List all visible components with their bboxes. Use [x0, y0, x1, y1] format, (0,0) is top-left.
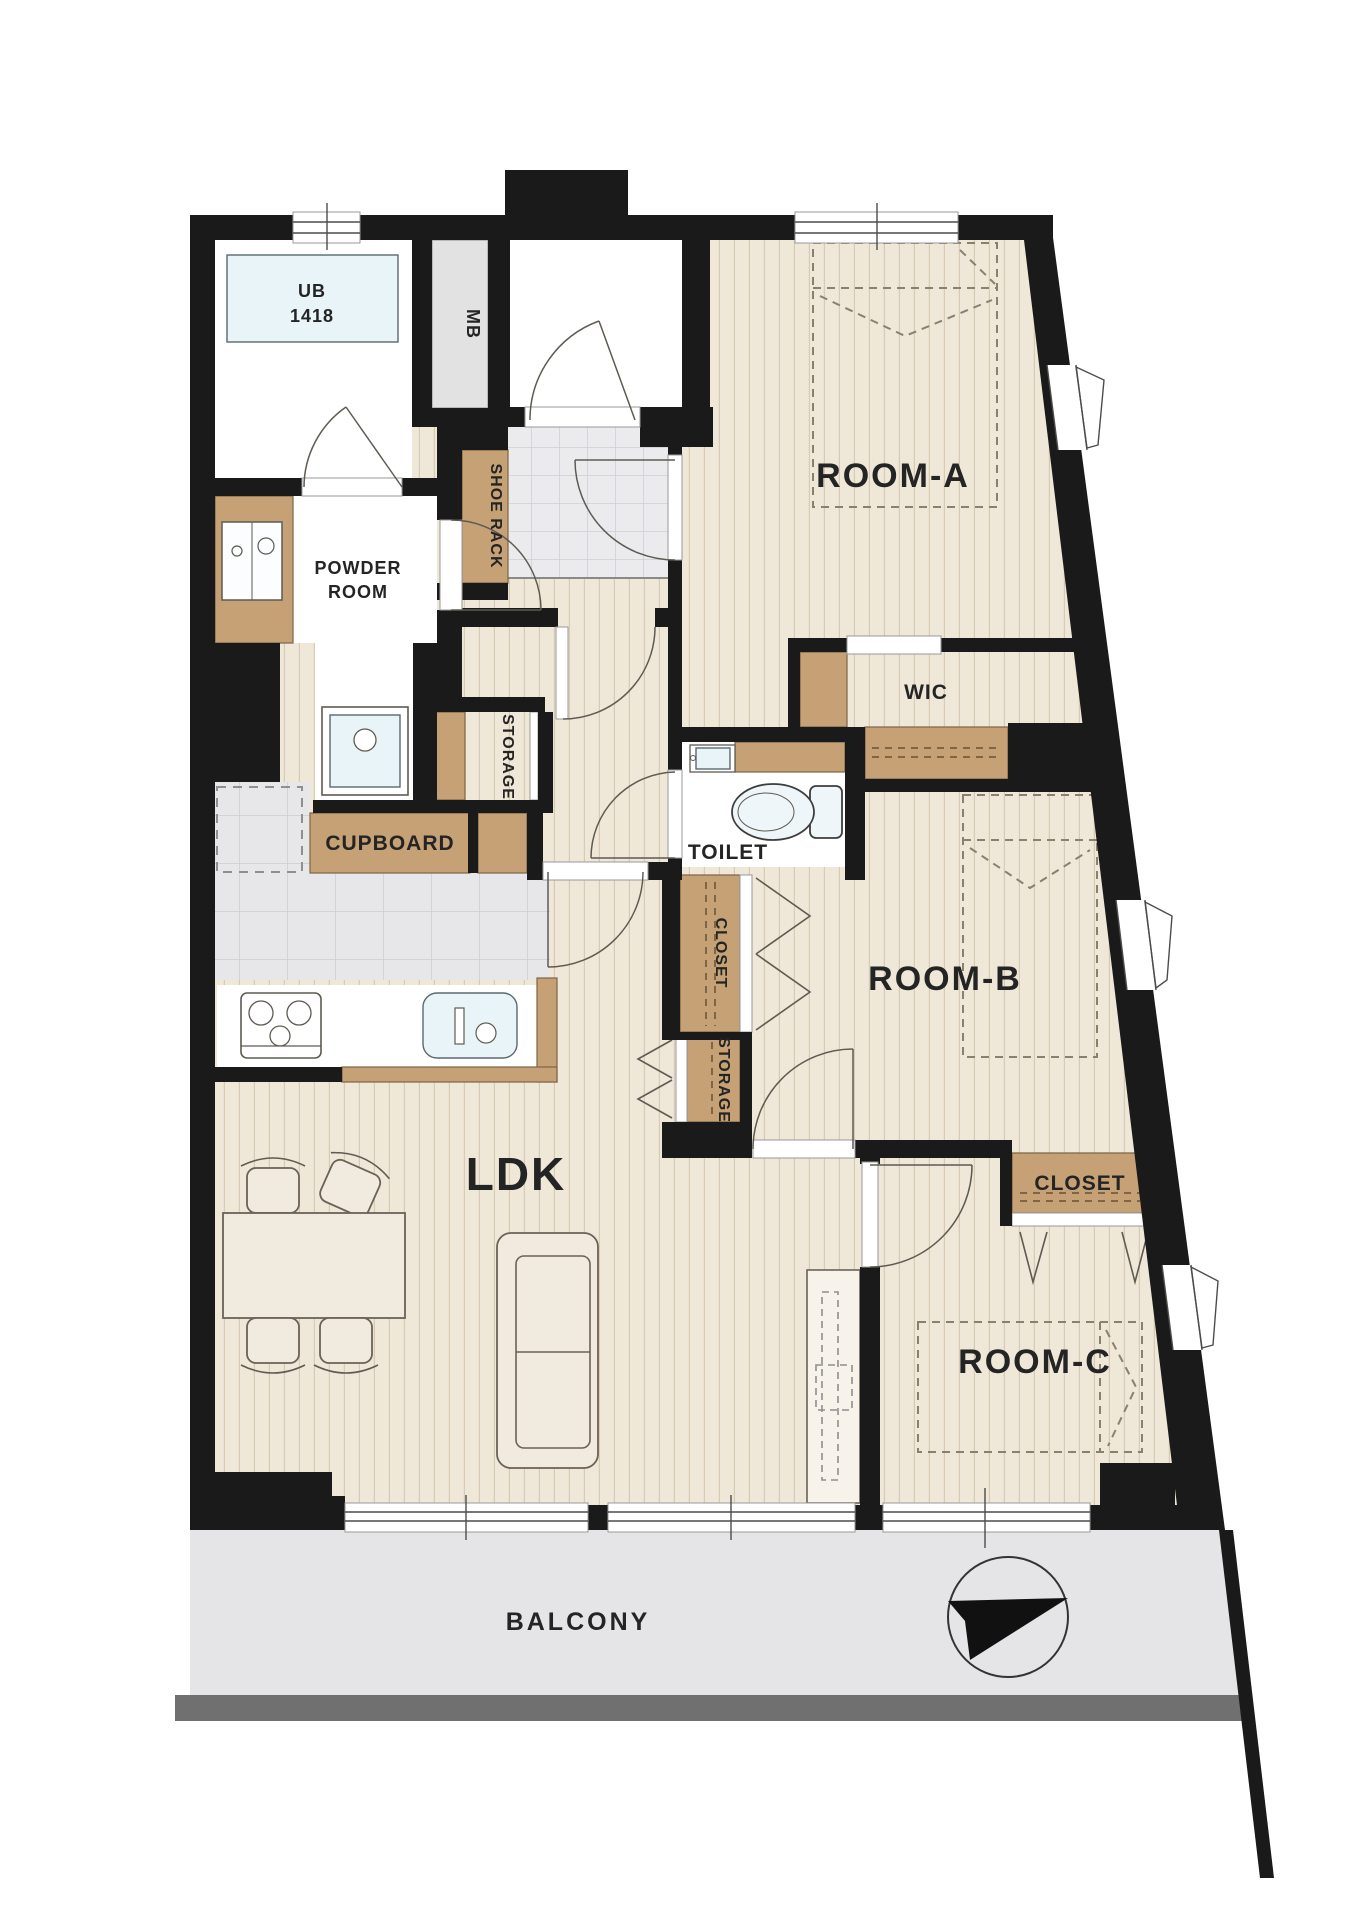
washbasin [322, 707, 408, 795]
room-b-label: ROOM-B [868, 960, 1022, 998]
bathroom-window [293, 203, 360, 250]
toilet-label: TOILET [688, 841, 768, 864]
meter-box-label: MB [463, 309, 483, 339]
balcony-floor [190, 1530, 1248, 1695]
dining-chair [320, 1318, 372, 1363]
powder-room-label-line1: POWDER [315, 558, 402, 578]
balcony-label: BALCONY [506, 1608, 651, 1636]
hall-storage-door [530, 712, 538, 800]
room-b-closet-label: CLOSET [712, 918, 729, 989]
wic-label: WIC [904, 681, 948, 704]
dining-chair [247, 1318, 299, 1363]
hall-storage-label: STORAGE [499, 714, 516, 800]
shoe-rack-label: SHOE RACK [487, 463, 504, 568]
gas-stove-icon [241, 993, 321, 1058]
balcony-area [175, 1530, 1252, 1721]
balcony-edge-rail [175, 1695, 1252, 1721]
room-b-closet-door [740, 875, 752, 1032]
ldk-label: LDK [466, 1148, 567, 1200]
washing-machine-space [215, 496, 293, 643]
unit-bath-label-line1: UB [298, 281, 326, 301]
unit-bath-label-line2: 1418 [290, 306, 334, 326]
kitchen-sink-icon [423, 993, 517, 1058]
ldk-storage-label: STORAGE [715, 1037, 732, 1123]
toilet-bowl [732, 784, 814, 840]
room-c-closet-label: CLOSET [1034, 1172, 1125, 1195]
entrance-porch [510, 240, 682, 407]
sofa [497, 1233, 598, 1468]
room-c-label: ROOM-C [958, 1343, 1112, 1381]
dining-chair [247, 1168, 299, 1213]
wic-doorway [847, 636, 941, 654]
ldk-storage-door [676, 1038, 687, 1122]
tv-board [807, 1270, 860, 1503]
cupboard-label: CUPBOARD [325, 832, 454, 855]
room-a-window [795, 203, 958, 250]
floor-plan-page: UB 1418 MB SHOE RACK POWDER ROOM STORAGE… [0, 0, 1358, 1920]
dining-table [223, 1213, 405, 1318]
room-c-closet-door [1012, 1213, 1152, 1226]
floor-plan-drawing: UB 1418 MB SHOE RACK POWDER ROOM STORAGE… [0, 0, 1358, 1920]
room-a-label: ROOM-A [816, 457, 970, 495]
powder-room-label-line2: ROOM [328, 582, 388, 602]
